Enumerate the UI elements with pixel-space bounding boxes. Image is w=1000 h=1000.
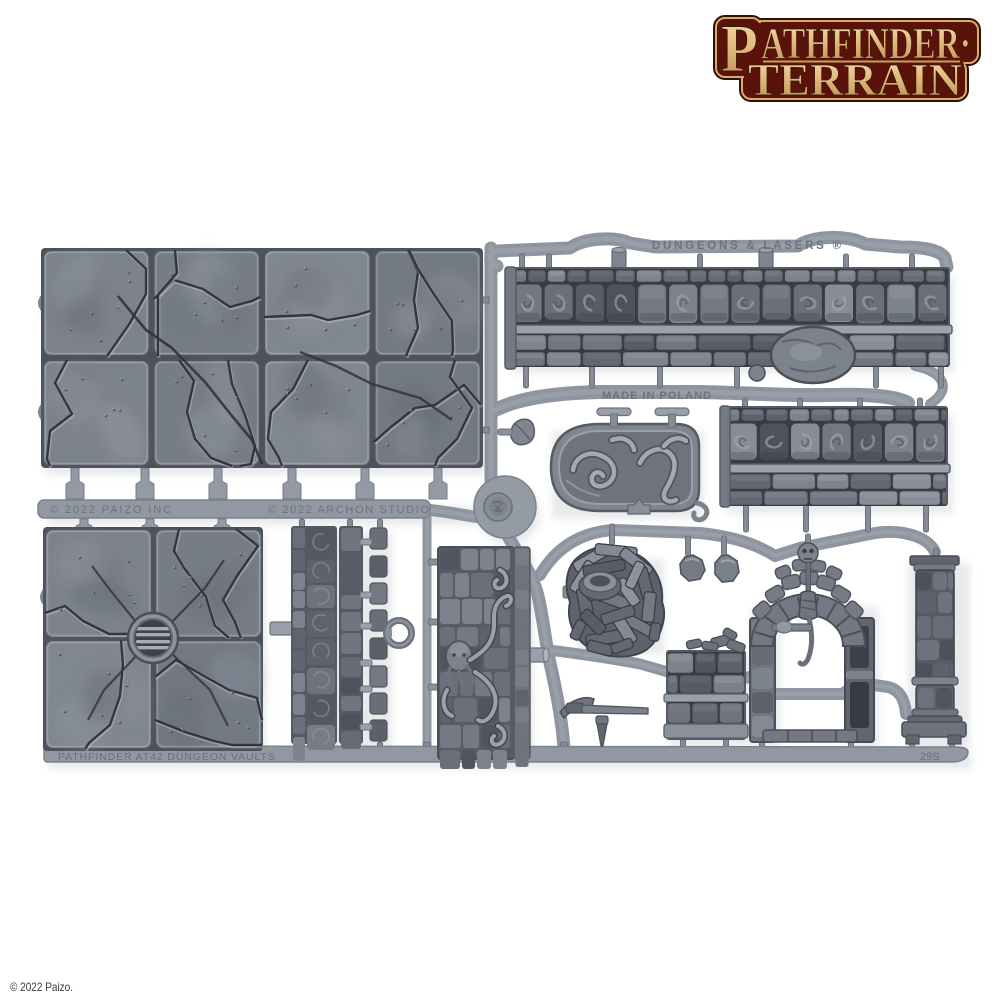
svg-text:MADE IN POLAND: MADE IN POLAND [602, 390, 712, 402]
svg-text:TERRAIN: TERRAIN [748, 54, 962, 105]
svg-text:© 2022 Paizo.: © 2022 Paizo. [10, 980, 73, 994]
svg-text:PATHFINDER AT42 DUNGEON VAULTS: PATHFINDER AT42 DUNGEON VAULTS [58, 751, 276, 763]
svg-text:29S: 29S [920, 751, 940, 763]
svg-text:© 2022 PAIZO INC: © 2022 PAIZO INC [50, 504, 172, 516]
svg-text:© 2022 ARCHON STUDIO: © 2022 ARCHON STUDIO [268, 504, 430, 516]
svg-text:DUNGEONS & LASERS ®: DUNGEONS & LASERS ® [652, 240, 842, 252]
